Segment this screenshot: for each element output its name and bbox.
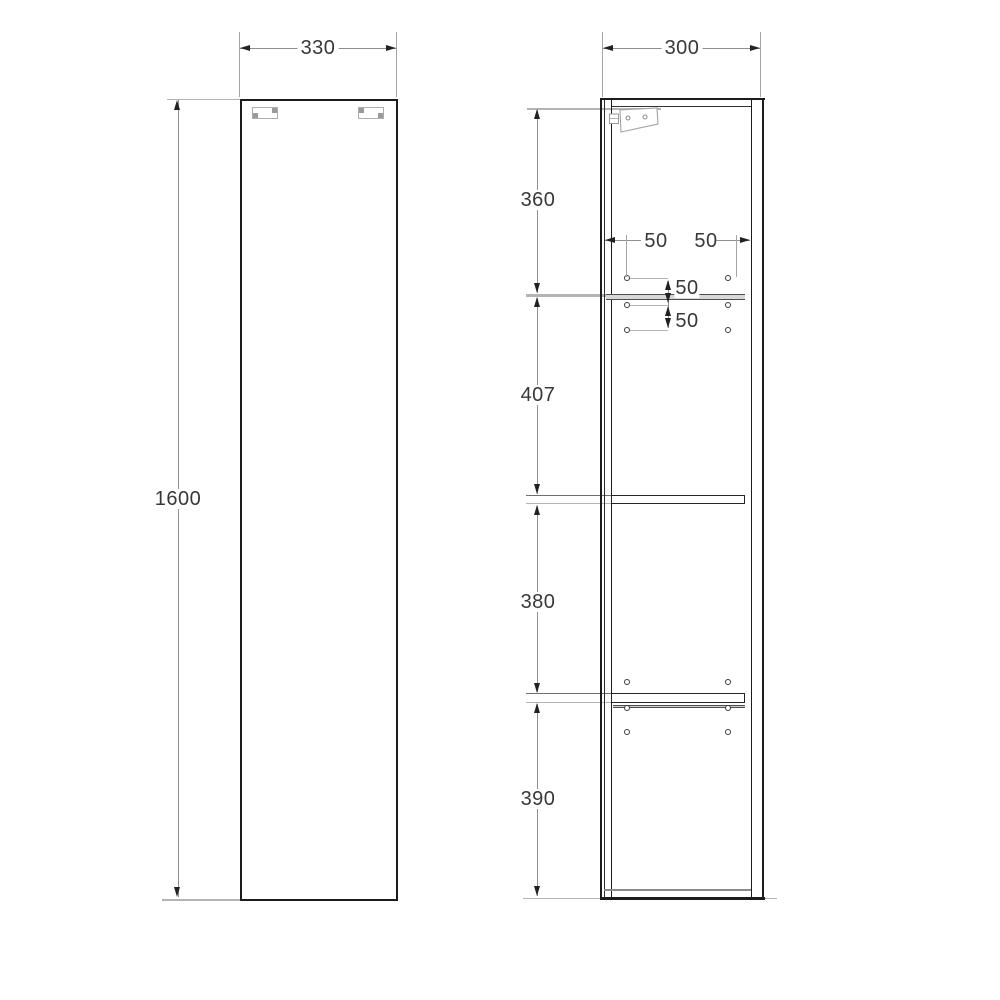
- side-back-outer-edge: [600, 99, 602, 900]
- side-top-edge: [600, 98, 765, 100]
- shelf-pin-hole: [725, 705, 731, 711]
- arrowhead-up-icon: [174, 100, 180, 110]
- arrowhead-left-icon: [603, 45, 613, 51]
- top-section-label: 360: [518, 190, 559, 210]
- hanging-bracket-icon: [605, 104, 667, 138]
- side-back-panel-line: [604, 99, 605, 900]
- arrowhead-up-icon: [534, 505, 540, 515]
- shelf-pin-hole: [624, 679, 630, 685]
- bracket-pin-icon: [272, 108, 277, 113]
- front-view-outline: [240, 99, 398, 901]
- arrowhead-up-icon: [665, 306, 671, 316]
- shelf-lower: [611, 693, 745, 703]
- bracket-pin-icon: [378, 113, 383, 118]
- arrowhead-down-icon: [174, 887, 180, 897]
- depth-label: 300: [662, 38, 703, 58]
- arrowhead-right-icon: [750, 45, 760, 51]
- arrowhead-down-icon: [534, 484, 540, 494]
- lower-middle-section-label: 380: [518, 592, 559, 612]
- arrowhead-up-icon: [534, 109, 540, 119]
- shelf-middle: [611, 495, 745, 504]
- arrowhead-up-icon: [665, 280, 671, 290]
- shelf-pin-hole: [624, 705, 630, 711]
- shelf-pin-hole: [725, 679, 731, 685]
- arrowhead-down-icon: [534, 683, 540, 693]
- shelf-pin-hole: [725, 729, 731, 735]
- wall-bracket-right: [358, 107, 384, 119]
- tick-hole-inset-right: [736, 235, 737, 277]
- hole-inset-left-label: 50: [641, 231, 670, 251]
- arrowhead-down-icon: [534, 886, 540, 896]
- shelf-pin-hole: [725, 275, 731, 281]
- hole-row-ext-line: [630, 330, 668, 331]
- arrowhead-up-icon: [534, 297, 540, 307]
- door-front-edge: [762, 99, 764, 900]
- front-width-label: 330: [298, 38, 339, 58]
- bottom-section-label: 390: [518, 789, 559, 809]
- hole-row-ext-line: [630, 278, 668, 279]
- shelf-pin-hole: [624, 729, 630, 735]
- ext-line-front-bottom: [162, 899, 244, 901]
- arrowhead-down-icon: [665, 318, 671, 328]
- bracket-pin-icon: [359, 108, 364, 113]
- arrowhead-left-icon: [605, 237, 615, 243]
- front-height-label: 1600: [152, 489, 205, 509]
- shelf-pin-hole: [725, 302, 731, 308]
- bracket-pin-icon: [253, 113, 258, 118]
- ext-line-depth-right: [760, 32, 761, 97]
- side-bottom-inner-line: [604, 889, 751, 891]
- ext-line-front-width-left: [239, 32, 240, 97]
- arrowhead-left-icon: [240, 45, 250, 51]
- upper-middle-section-label: 407: [518, 385, 559, 405]
- hole-row-ext-line: [630, 305, 668, 306]
- arrowhead-right-icon: [740, 237, 750, 243]
- shelf-pin-hole: [725, 327, 731, 333]
- arrowhead-up-icon: [534, 703, 540, 713]
- ext-line-front-width-right: [396, 32, 397, 97]
- tick-hole-inset-left: [626, 235, 627, 277]
- technical-drawing-canvas: 330 1600 300: [0, 0, 1000, 1000]
- side-front-edge: [751, 99, 753, 900]
- side-bottom-edge: [600, 897, 765, 900]
- hole-pitch-upper-label: 50: [674, 278, 699, 298]
- wall-bracket-left: [252, 107, 278, 119]
- ext-line-depth-left: [602, 32, 603, 97]
- arrowhead-down-icon: [665, 293, 671, 303]
- hole-pitch-lower-label: 50: [674, 311, 699, 331]
- arrowhead-down-icon: [534, 283, 540, 293]
- arrowhead-right-icon: [386, 45, 396, 51]
